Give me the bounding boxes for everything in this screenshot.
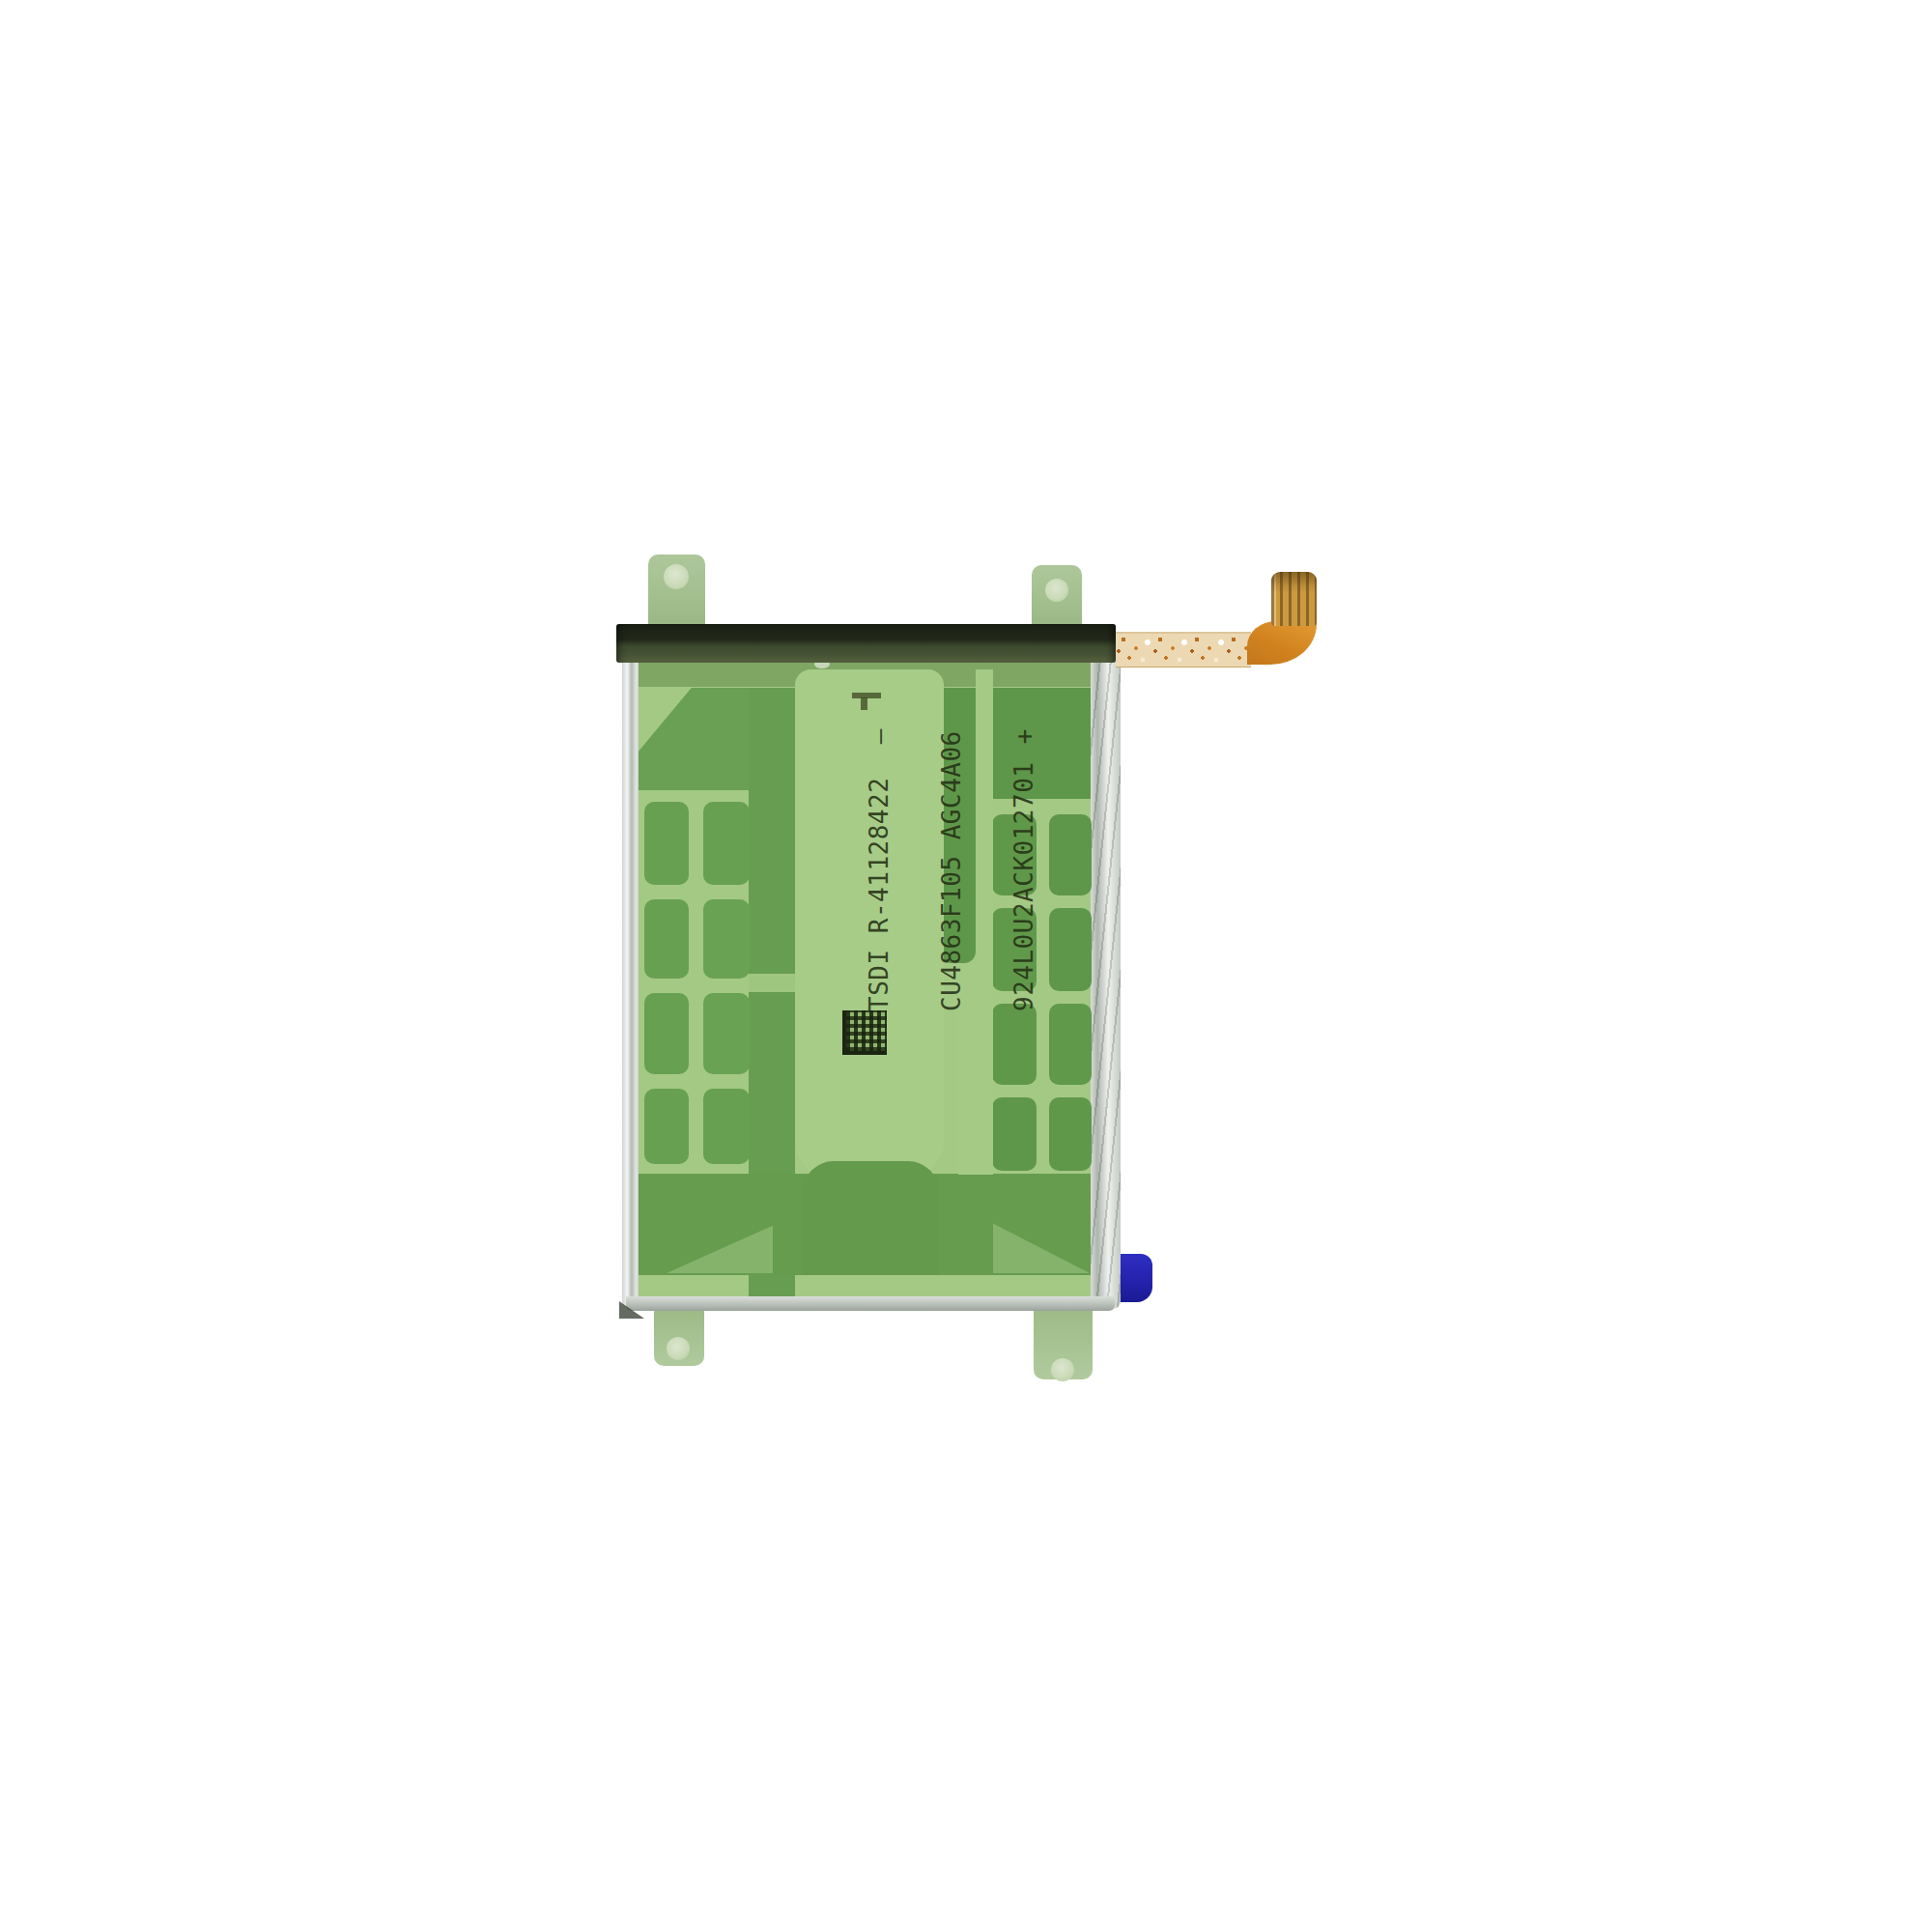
adhesive-cell xyxy=(644,802,689,885)
print-line-3: 924L0U2ACK012701+ xyxy=(1012,728,1037,1011)
print-line-1-mark: – xyxy=(867,728,892,744)
adhesive-cell xyxy=(703,802,750,885)
pouch-edge-bottom xyxy=(626,1296,1115,1311)
adhesive-cell xyxy=(1049,1004,1092,1085)
adhesive-cell xyxy=(703,993,750,1074)
print-line-3-mark: + xyxy=(1012,728,1037,744)
mounting-tab-bottom-right xyxy=(1034,1306,1093,1379)
blue-pull-tab xyxy=(1118,1254,1152,1302)
data-matrix-code xyxy=(842,1010,887,1055)
pouch-edge-right xyxy=(1090,649,1121,1309)
polarity-mark-tick xyxy=(861,697,867,710)
adhesive-cell xyxy=(644,993,689,1074)
adhesive-cell xyxy=(992,1097,1037,1171)
print-line-1: TSDI R-41128422– xyxy=(867,728,892,1011)
print-line-1-code: TSDI R-41128422 xyxy=(867,778,892,1011)
print-line-2: CU4863F105 AGC4A06 xyxy=(940,728,964,1011)
mounting-tab-top-right xyxy=(1032,565,1082,630)
pouch-edge-left xyxy=(622,630,639,1308)
flex-connector xyxy=(1271,572,1317,626)
tab-hole xyxy=(1045,579,1068,602)
tab-hole xyxy=(667,1337,690,1360)
adhesive-cell xyxy=(644,899,689,979)
adhesive-cell xyxy=(992,1004,1037,1085)
adhesive-cell xyxy=(703,899,750,979)
tab-hole xyxy=(664,564,689,589)
flex-cable-ribbon xyxy=(1116,632,1251,668)
adhesive-grid-left xyxy=(639,790,754,1185)
mounting-tab-bottom-left xyxy=(654,1310,704,1366)
print-line-2-code: CU4863F105 AGC4A06 xyxy=(940,730,964,1011)
heat-seal-bar xyxy=(616,624,1116,663)
tab-hole xyxy=(1051,1358,1074,1381)
adhesive-cell xyxy=(1049,1097,1092,1171)
serial-print-block: TSDI R-41128422– CU4863F105 AGC4A06 924L… xyxy=(819,728,892,1011)
film-inner-dark-rect xyxy=(803,1161,939,1275)
adhesive-cell xyxy=(644,1089,689,1164)
adhesive-cell xyxy=(703,1089,750,1164)
print-line-3-code: 924L0U2ACK012701 xyxy=(1012,762,1037,1011)
film-light-line-horizontal xyxy=(749,974,795,992)
battery-product-photo: TSDI R-41128422– CU4863F105 AGC4A06 924L… xyxy=(0,0,1932,1932)
flex-cable-elbow xyxy=(1247,621,1317,665)
mounting-tab-top-left xyxy=(648,554,705,630)
